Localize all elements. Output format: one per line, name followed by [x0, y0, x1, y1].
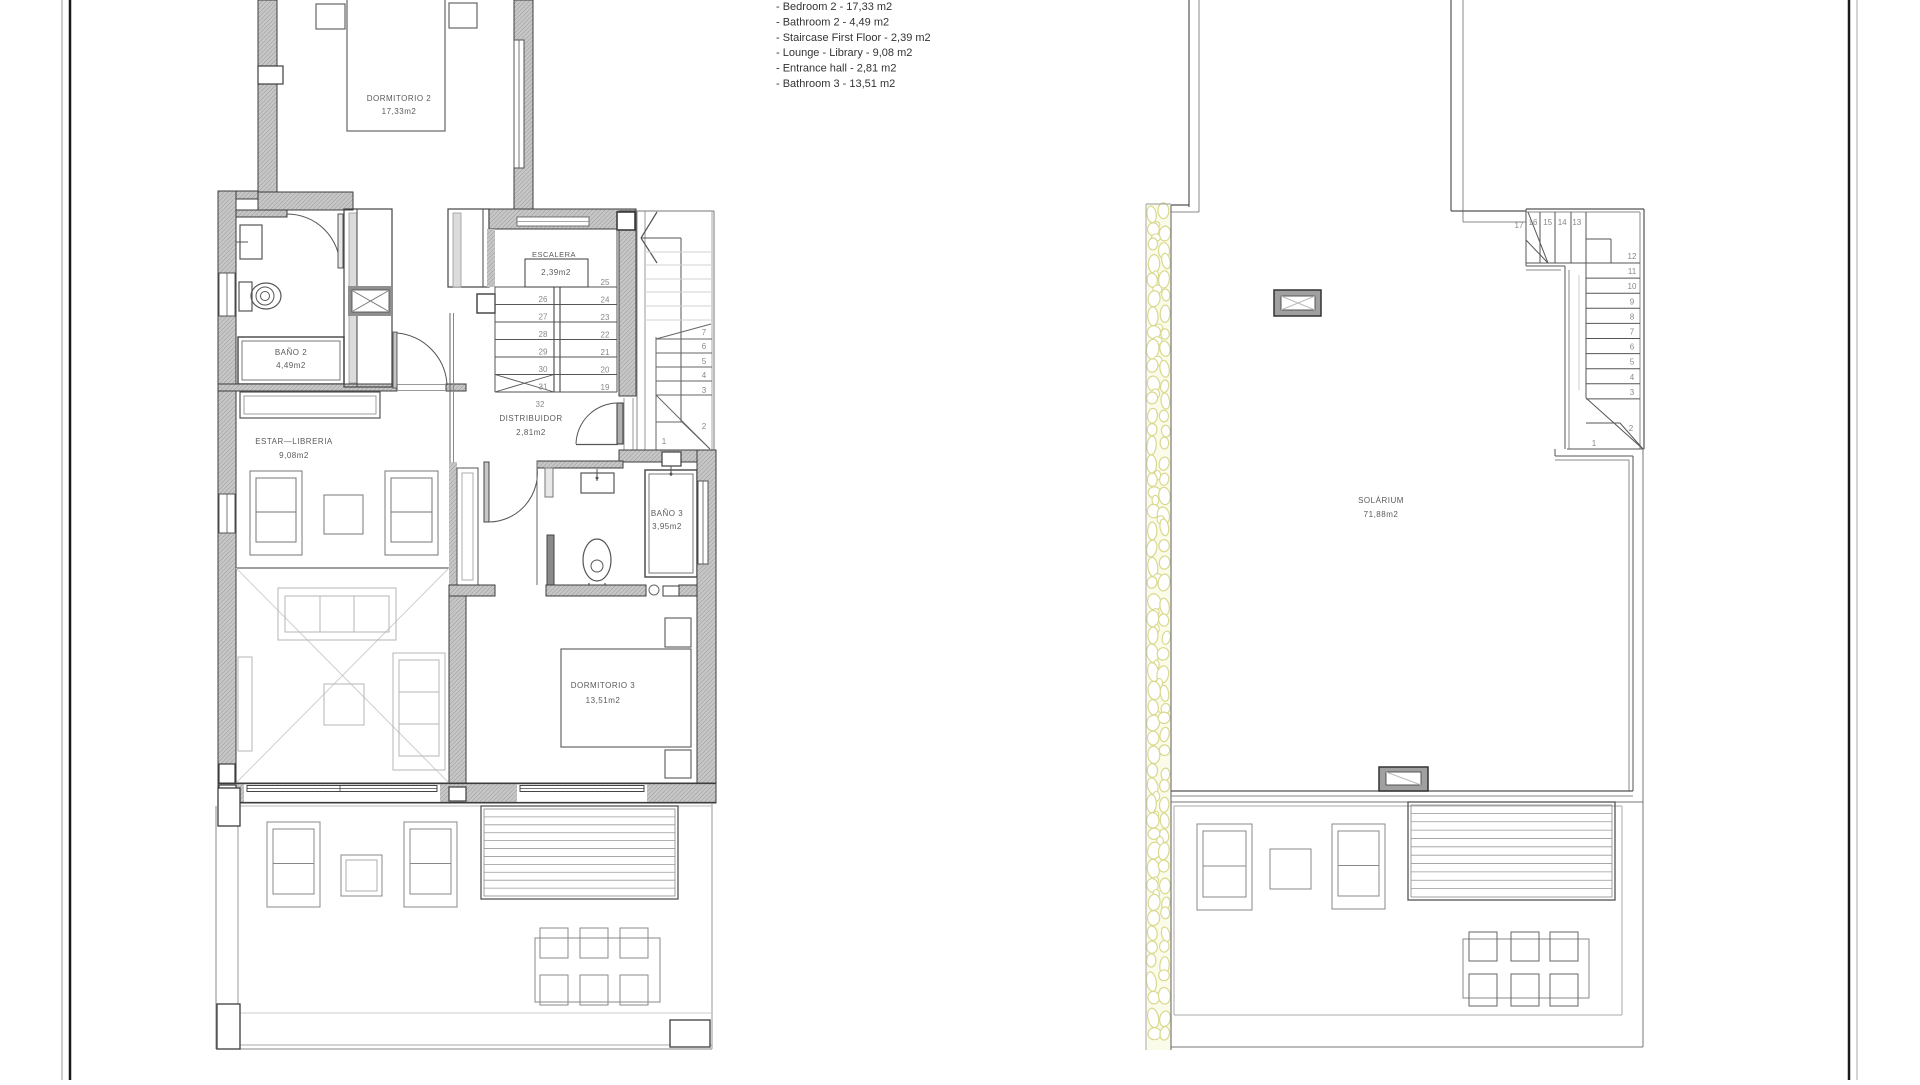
svg-text:2,81m2: 2,81m2	[516, 428, 546, 437]
svg-text:- Bathroom 2 - 4,49 m2: - Bathroom 2 - 4,49 m2	[776, 16, 889, 28]
svg-text:2,39m2: 2,39m2	[541, 268, 571, 277]
svg-text:1: 1	[1592, 439, 1597, 448]
svg-text:26: 26	[539, 295, 548, 304]
svg-text:28: 28	[539, 330, 548, 339]
svg-text:2: 2	[702, 422, 707, 431]
svg-text:7: 7	[702, 328, 707, 337]
svg-text:6: 6	[702, 342, 707, 351]
svg-text:13: 13	[1572, 218, 1581, 227]
svg-text:12: 12	[1628, 252, 1637, 261]
svg-text:3: 3	[1630, 388, 1635, 397]
svg-text:29: 29	[539, 348, 548, 357]
svg-text:3,95m2: 3,95m2	[652, 522, 682, 531]
svg-text:ESTAR—LIBRERIA: ESTAR—LIBRERIA	[255, 437, 333, 446]
svg-text:27: 27	[539, 313, 548, 322]
svg-text:8: 8	[1630, 312, 1635, 321]
svg-text:ESCALERA: ESCALERA	[532, 250, 576, 259]
svg-text:3: 3	[702, 386, 707, 395]
svg-text:DORMITORIO 2: DORMITORIO 2	[367, 94, 432, 103]
svg-text:- Lounge - Library - 9,08 m2: - Lounge - Library - 9,08 m2	[776, 47, 912, 59]
svg-text:4,49m2: 4,49m2	[276, 361, 306, 370]
svg-text:20: 20	[601, 366, 610, 375]
svg-text:30: 30	[539, 365, 548, 374]
svg-text:DORMITORIO 3: DORMITORIO 3	[571, 681, 636, 690]
svg-text:24: 24	[601, 296, 610, 305]
svg-text:16: 16	[1529, 218, 1538, 227]
svg-text:15: 15	[1543, 218, 1552, 227]
svg-text:4: 4	[1630, 373, 1635, 382]
svg-text:7: 7	[1630, 328, 1635, 337]
svg-text:14: 14	[1558, 218, 1567, 227]
svg-text:31: 31	[539, 383, 548, 392]
svg-text:71,88m2: 71,88m2	[1364, 510, 1399, 519]
svg-text:BAÑO 2: BAÑO 2	[275, 348, 307, 357]
svg-text:DISTRIBUIDOR: DISTRIBUIDOR	[499, 414, 562, 423]
svg-text:17,33m2: 17,33m2	[382, 107, 417, 116]
svg-text:4: 4	[702, 371, 707, 380]
svg-text:9,08m2: 9,08m2	[279, 451, 309, 460]
svg-text:19: 19	[601, 383, 610, 392]
svg-text:32: 32	[536, 400, 545, 409]
svg-text:BAÑO 3: BAÑO 3	[651, 509, 683, 518]
svg-text:- Entrance hall - 2,81 m2: - Entrance hall - 2,81 m2	[776, 63, 896, 75]
svg-text:10: 10	[1628, 282, 1637, 291]
svg-text:13,51m2: 13,51m2	[586, 696, 621, 705]
svg-text:- Bathroom 3 - 13,51 m2: - Bathroom 3 - 13,51 m2	[776, 78, 895, 90]
svg-text:9: 9	[1630, 297, 1635, 306]
svg-text:23: 23	[601, 313, 610, 322]
svg-text:5: 5	[702, 357, 707, 366]
svg-text:17: 17	[1515, 221, 1524, 230]
svg-text:11: 11	[1628, 267, 1637, 276]
svg-text:2: 2	[1629, 424, 1634, 433]
svg-text:5: 5	[1630, 358, 1635, 367]
svg-text:21: 21	[601, 348, 610, 357]
svg-text:22: 22	[601, 331, 610, 340]
svg-text:- Bedroom 2 - 17,33 m2: - Bedroom 2 - 17,33 m2	[776, 1, 892, 13]
svg-text:6: 6	[1630, 343, 1635, 352]
svg-text:1: 1	[662, 437, 667, 446]
svg-text:- Staircase First Floor - 2,39: - Staircase First Floor - 2,39 m2	[776, 32, 931, 44]
svg-text:SOLÁRIUM: SOLÁRIUM	[1358, 496, 1404, 505]
svg-text:25: 25	[601, 278, 610, 287]
